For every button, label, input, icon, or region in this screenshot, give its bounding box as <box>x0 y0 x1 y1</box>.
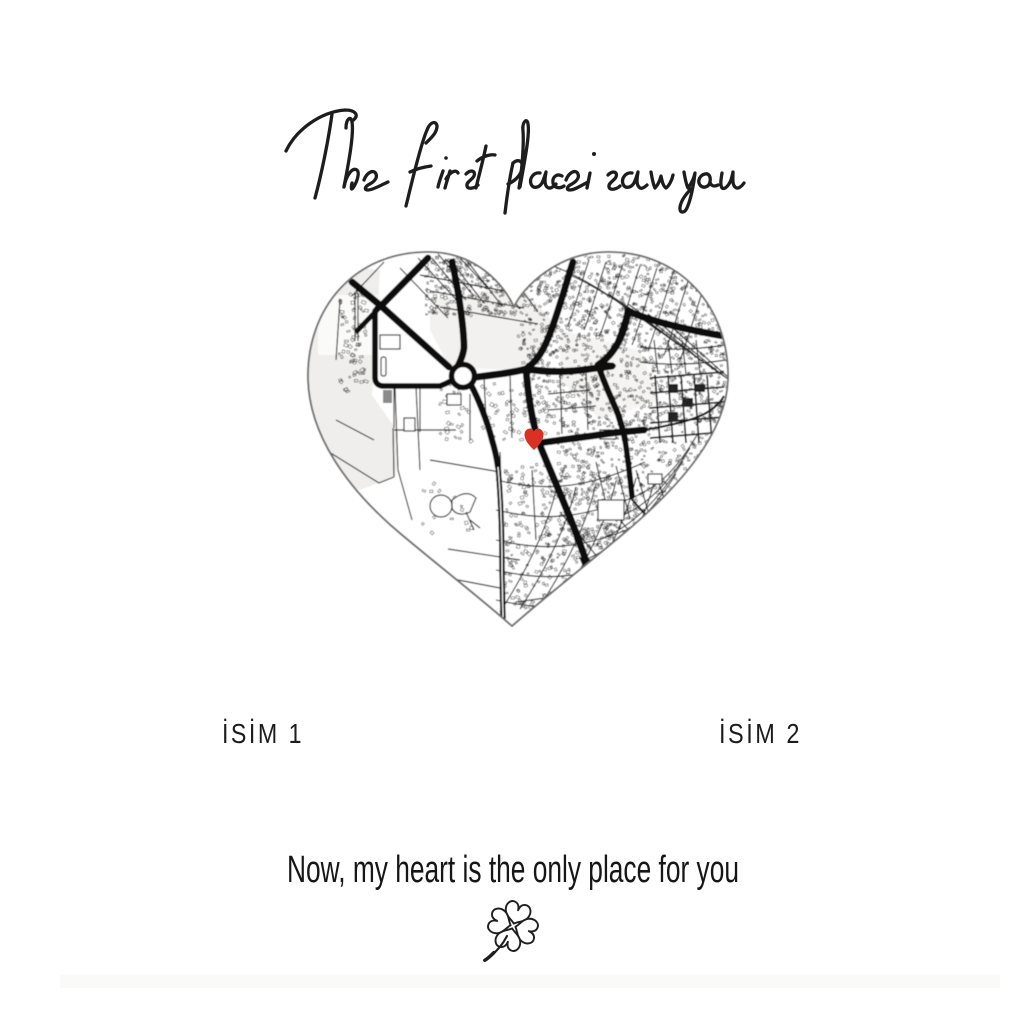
svg-text:İSİM 1: İSİM 1 <box>222 718 304 749</box>
svg-text:İSİM 2: İSİM 2 <box>719 718 802 749</box>
svg-text:Now, my heart is the only plac: Now, my heart is the only place for you <box>287 849 739 891</box>
